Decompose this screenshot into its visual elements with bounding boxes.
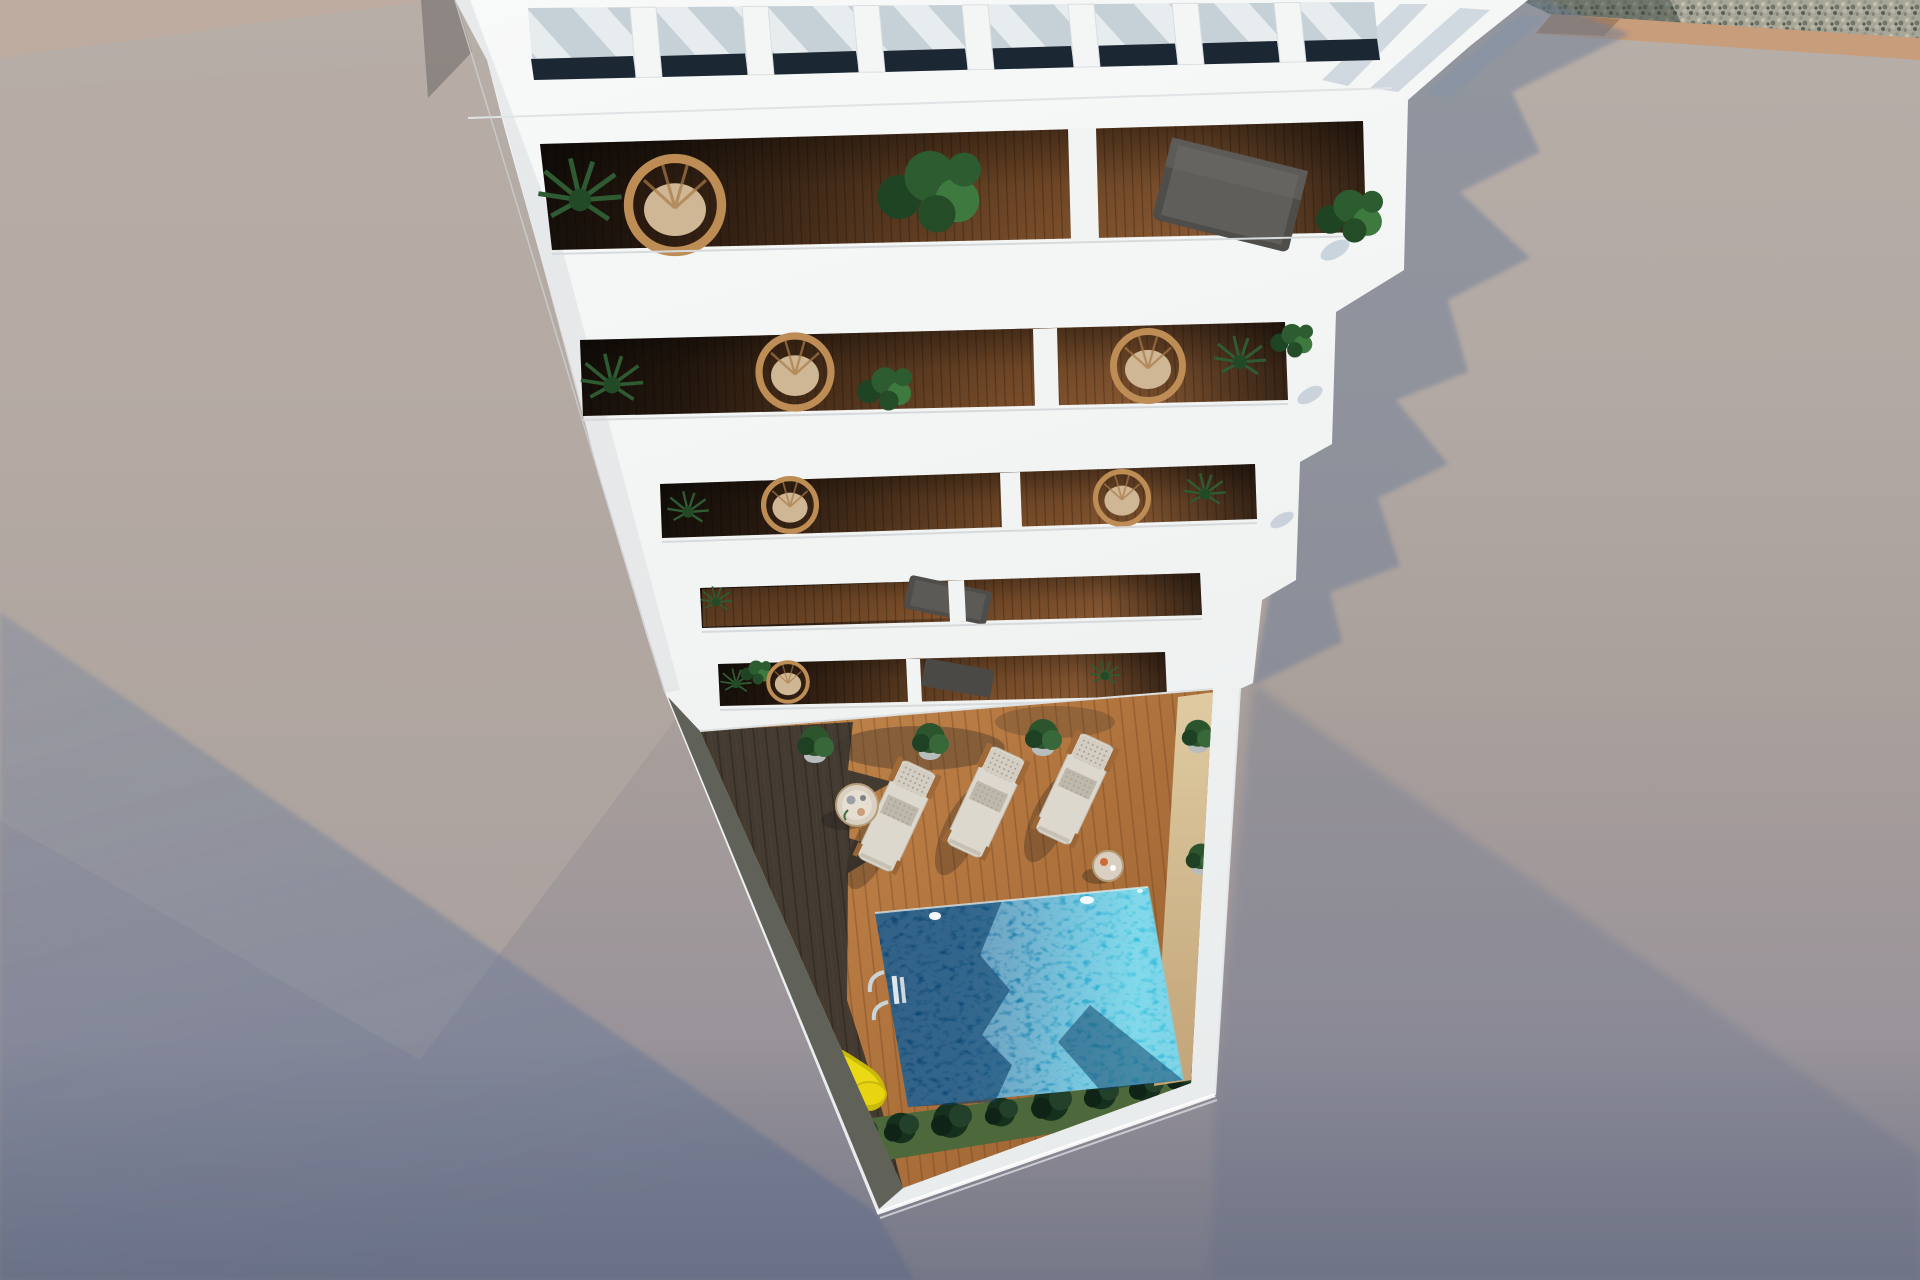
wicker-chair [764, 479, 817, 532]
wicker-chair [629, 159, 722, 252]
unit-divider [1068, 128, 1099, 241]
pergola-opening [528, 7, 636, 80]
pergola-opening [768, 6, 859, 75]
water-glint [1080, 896, 1094, 904]
unit-divider [1000, 472, 1022, 528]
aerial-render [0, 0, 1920, 1280]
pergola-opening [1094, 4, 1178, 67]
wicker-chair [768, 662, 808, 702]
pergola-opening [1198, 3, 1280, 64]
pergola-opening [988, 4, 1074, 69]
wicker-chair [1114, 332, 1183, 401]
water-glint [929, 912, 941, 920]
pool [860, 878, 1195, 1118]
pergola-opening [1300, 2, 1380, 62]
render-canvas [0, 0, 1920, 1280]
pergola-opening [656, 7, 748, 78]
wicker-chair [1096, 472, 1149, 525]
balcony-floor-1 [538, 121, 1383, 254]
wicker-chair [759, 336, 831, 408]
pergola-opening [879, 5, 968, 72]
water-glint [1137, 889, 1143, 893]
unit-divider [948, 580, 966, 622]
unit-divider [906, 659, 922, 702]
unit-divider [1033, 328, 1059, 407]
